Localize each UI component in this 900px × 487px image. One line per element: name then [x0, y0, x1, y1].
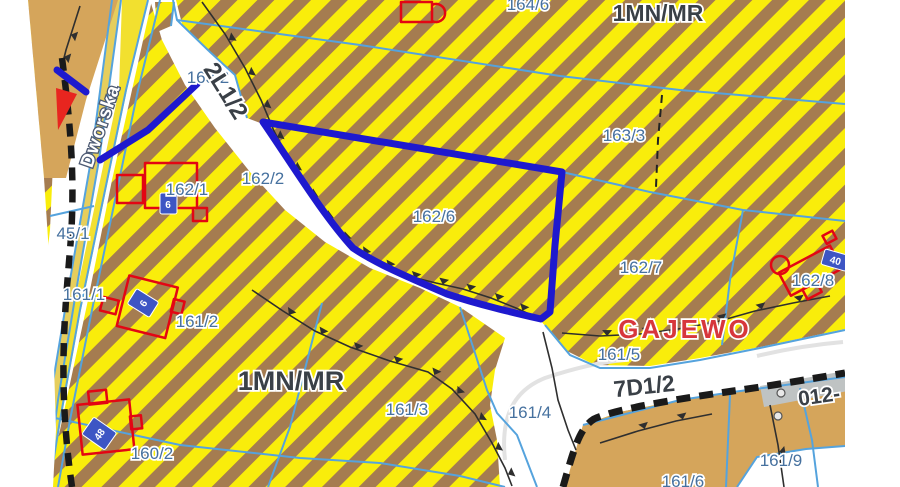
survey-symbol-1: [777, 389, 785, 397]
parcel-label-161-9: 161/9: [760, 451, 803, 470]
parcel-label-162-2: 162/2: [242, 169, 285, 188]
parcel-label-160-2: 160/2: [131, 444, 174, 463]
address-plate-162-1-text: 6: [165, 200, 171, 211]
parcel-label-162-8: 162/8: [792, 271, 835, 290]
parcel-label-161-1: 161/1: [63, 285, 106, 304]
parcel-label-161-2: 161/2: [176, 312, 219, 331]
parcel-label-164-6: 164/6: [507, 0, 550, 14]
parcel-label-161-3: 161/3: [386, 400, 429, 419]
place-label-gajewo: GAJEWO: [618, 314, 752, 344]
zone-label-1mn-mr-left: 1MN/MR: [238, 366, 345, 396]
map-margin-right: [845, 0, 900, 487]
parcel-label-161-6: 161/6: [662, 472, 705, 487]
zone-label-1mn-mr-top: 1MN/MR: [613, 0, 704, 26]
survey-symbol-2: [774, 412, 782, 420]
parcel-label-162-7: 162/7: [620, 258, 663, 277]
parcel-label-162-6: 162/6: [413, 207, 456, 226]
parcel-label-162-1: 162/1: [166, 180, 209, 199]
parcel-label-45-1: 45/1: [56, 224, 89, 243]
map-canvas[interactable]: 6 6 48 40 163/2 162/2 162/1 45/1 161/1 1…: [0, 0, 900, 487]
parcel-label-163-3: 163/3: [603, 126, 646, 145]
parcel-label-161-4: 161/4: [509, 403, 552, 422]
parcel-label-161-5: 161/5: [598, 345, 641, 364]
